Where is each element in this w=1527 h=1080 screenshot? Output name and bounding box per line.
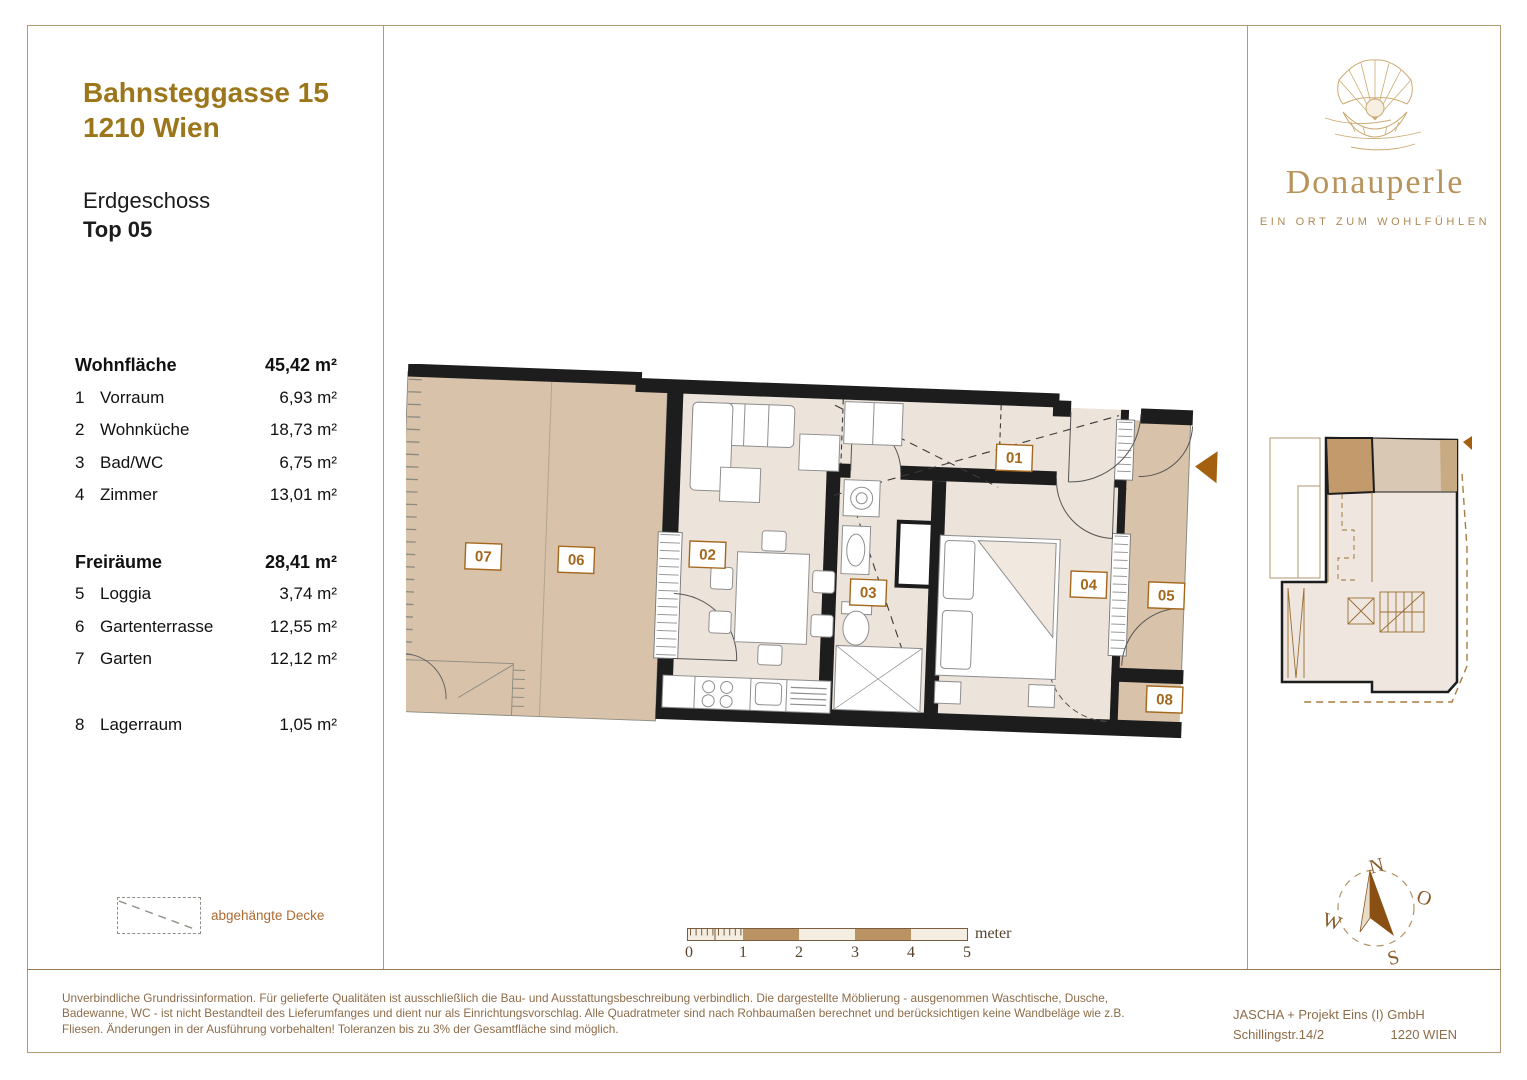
- room-label-02: 02: [689, 541, 726, 568]
- room-label-05: 05: [1148, 582, 1185, 609]
- floor-label: Erdgeschoss: [83, 186, 210, 215]
- company-info: JASCHA + Projekt Eins (I) GmbH Schilling…: [1233, 1005, 1457, 1045]
- area-table: Wohnfläche 45,42 m² 1 Vorraum 6,93 m² 2 …: [75, 355, 337, 747]
- svg-text:04: 04: [1080, 576, 1098, 594]
- table-row: 8 Lagerraum 1,05 m²: [75, 715, 337, 748]
- unit-highlight: [1326, 438, 1374, 494]
- scale-unit-label: meter: [975, 925, 1011, 943]
- svg-text:08: 08: [1156, 691, 1173, 709]
- table-row: 7 Garten 12,12 m²: [75, 649, 337, 682]
- divider-footer: [27, 969, 1501, 970]
- pearl-shell-icon: [1295, 50, 1455, 160]
- scale-bar-graphic: [687, 928, 987, 944]
- unit-label: Top 05: [83, 217, 152, 242]
- svg-text:03: 03: [860, 584, 877, 602]
- building-overview-map: [1262, 430, 1480, 715]
- room-label-08: 08: [1146, 686, 1183, 713]
- address-line-1: Bahnsteggasse 15: [83, 75, 329, 110]
- project-address: Bahnsteggasse 15 1210 Wien: [83, 75, 329, 145]
- logo: Donauperle EIN ORT ZUM WOHLFÜHLEN: [1252, 50, 1498, 228]
- svg-text:06: 06: [568, 552, 585, 570]
- compass-w: W: [1320, 909, 1345, 936]
- table-row: 5 Loggia 3,74 m²: [75, 584, 337, 617]
- ceiling-legend-swatch: [117, 897, 201, 934]
- living-area-title: Wohnfläche: [75, 355, 245, 376]
- company-city: 1220 WIEN: [1391, 1025, 1457, 1045]
- table-row: 1 Vorraum 6,93 m²: [75, 388, 337, 421]
- ceiling-legend-label: abgehängte Decke: [211, 908, 324, 923]
- unit-info: Erdgeschoss Top 05: [83, 186, 210, 244]
- room-label-04: 04: [1070, 571, 1107, 598]
- table-row: 3 Bad/WC 6,75 m²: [75, 453, 337, 486]
- compass: N O S W: [1318, 852, 1438, 970]
- disclaimer-text: Unverbindliche Grundrissinformation. Für…: [62, 991, 1127, 1037]
- room-label-01: 01: [996, 444, 1033, 471]
- garden-terrace-area: [406, 372, 668, 721]
- address-line-2: 1210 Wien: [83, 110, 329, 145]
- svg-text:02: 02: [699, 546, 716, 564]
- living-area-total: 45,42 m²: [245, 355, 337, 376]
- floor-plan: 07 06 02 03 01 04: [406, 364, 1228, 776]
- company-street: Schillingstr.14/2: [1233, 1025, 1324, 1045]
- table-row: 6 Gartenterrasse 12,55 m²: [75, 617, 337, 650]
- company-name: JASCHA + Projekt Eins (I) GmbH: [1233, 1005, 1457, 1025]
- divider-left-column: [383, 25, 384, 969]
- ceiling-legend: abgehängte Decke: [117, 897, 324, 934]
- open-area-title: Freiräume: [75, 552, 245, 573]
- room-label-06: 06: [558, 546, 595, 573]
- logo-name: Donauperle: [1252, 164, 1498, 202]
- compass-needle-dark: [1370, 870, 1394, 936]
- divider-right-column: [1247, 25, 1248, 969]
- map-entrance-arrow-icon: [1463, 436, 1472, 450]
- scale-bar: 0 1 2 3 4 5 meter: [687, 928, 987, 949]
- living-area-header: Wohnfläche 45,42 m²: [75, 355, 337, 388]
- svg-text:05: 05: [1158, 587, 1175, 605]
- compass-needle-light: [1360, 870, 1370, 932]
- compass-o: O: [1413, 886, 1434, 912]
- table-row: 4 Zimmer 13,01 m²: [75, 485, 337, 518]
- compass-s: S: [1385, 946, 1402, 970]
- table-row: 2 Wohnküche 18,73 m²: [75, 420, 337, 453]
- room-label-03: 03: [850, 579, 887, 606]
- open-area-header: Freiräume 28,41 m²: [75, 552, 337, 585]
- entrance-arrow-icon: [1194, 450, 1217, 483]
- logo-tagline: EIN ORT ZUM WOHLFÜHLEN: [1252, 216, 1498, 228]
- room-label-07: 07: [465, 543, 502, 570]
- svg-text:07: 07: [475, 548, 492, 566]
- open-area-total: 28,41 m²: [245, 552, 337, 573]
- svg-text:01: 01: [1006, 450, 1023, 468]
